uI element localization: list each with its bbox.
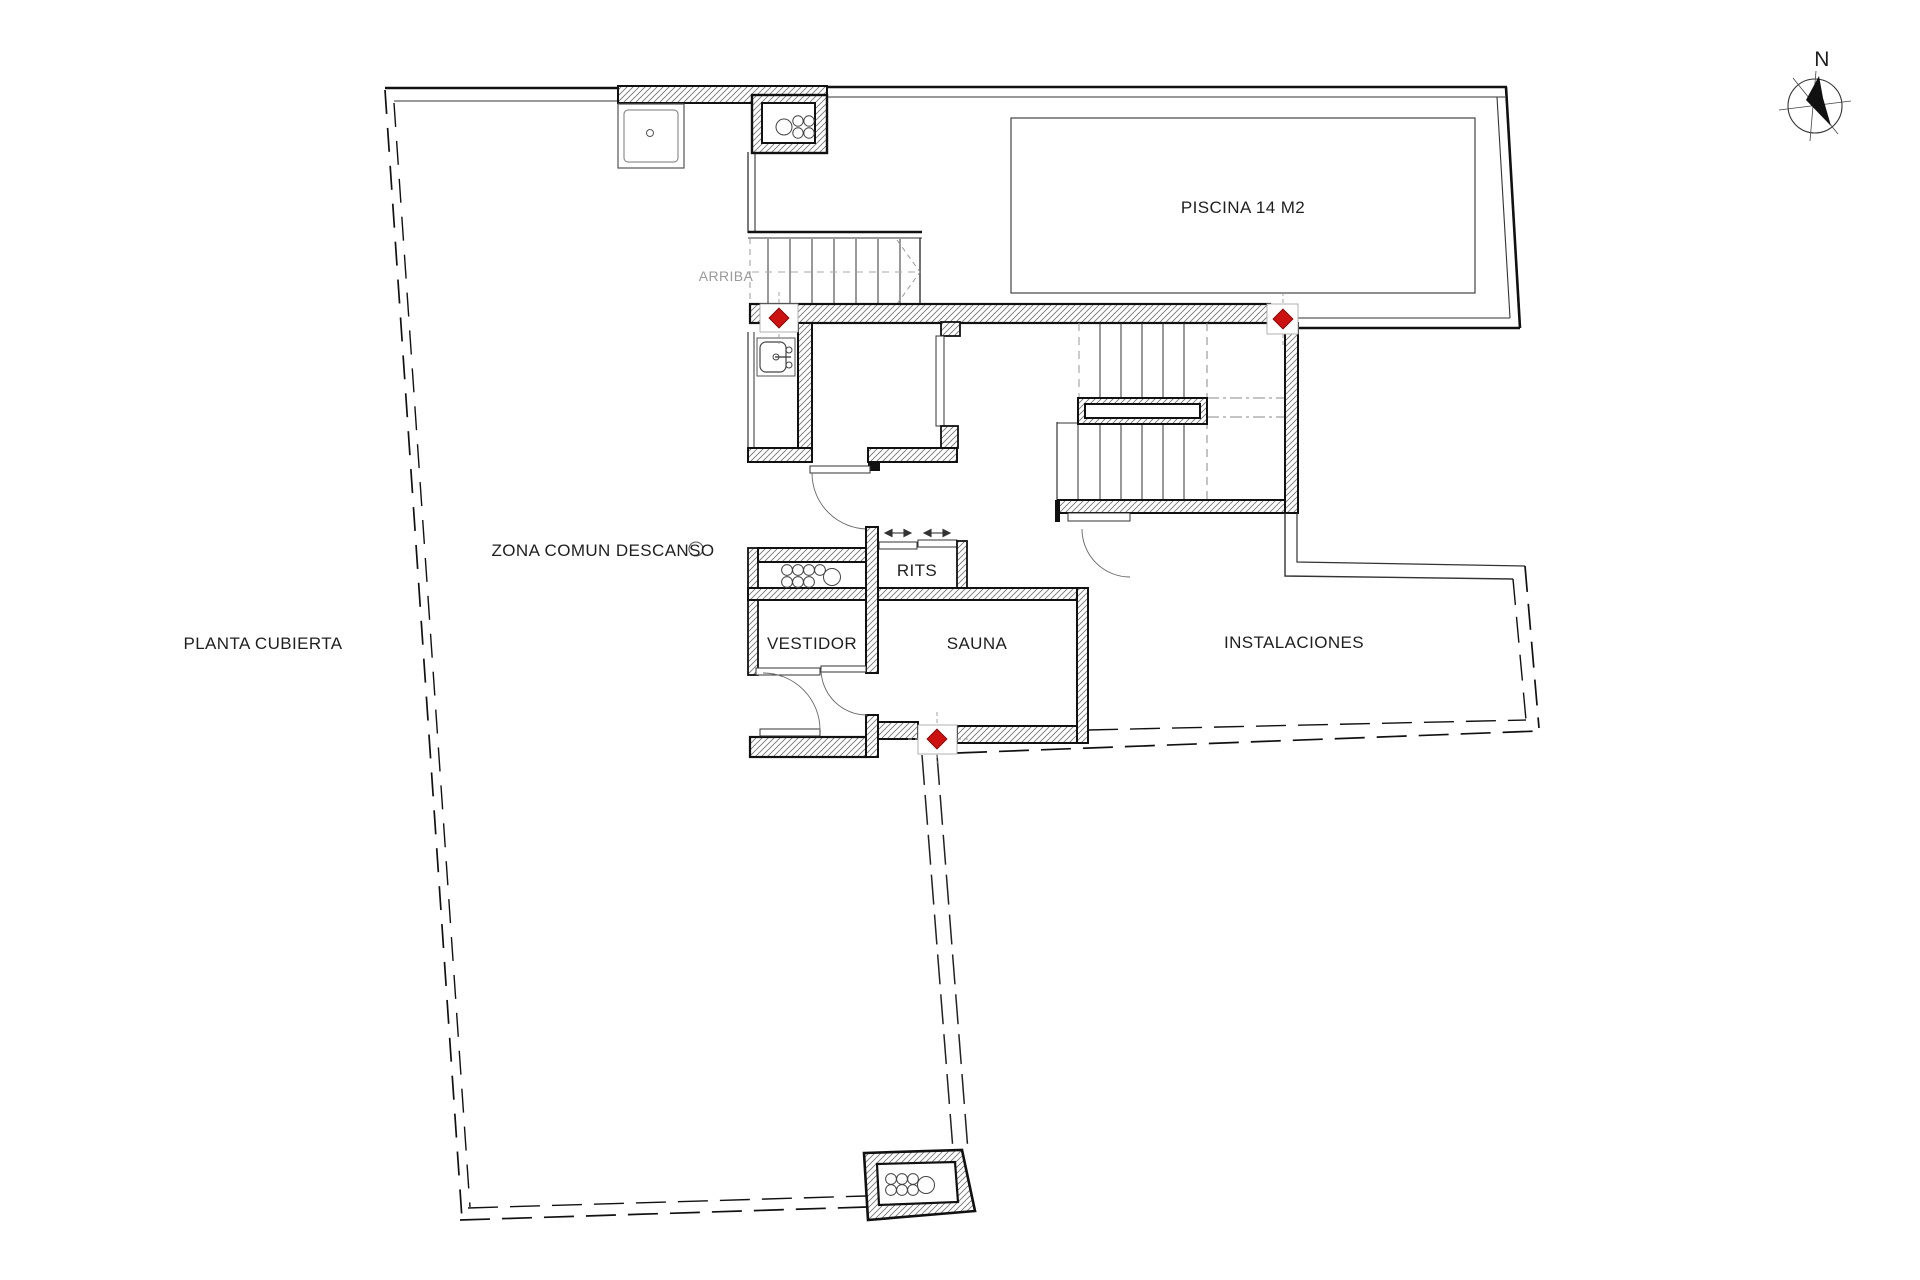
compass-north-label: N — [1814, 48, 1830, 71]
room-label-vestidor: VESTIDOR — [767, 634, 857, 653]
vestidor-door — [821, 666, 867, 715]
rits-panel — [918, 540, 957, 547]
elevator-door — [936, 336, 944, 426]
shower-tray-icon — [618, 104, 684, 168]
elevator-room — [798, 323, 958, 448]
pool-terrace — [618, 86, 1520, 328]
room-label-piscina: PISCINA 14 M2 — [1181, 198, 1305, 217]
room-label-zona-comun: ZONA COMUN DESCANSO — [492, 541, 715, 560]
room-label-instalaciones: INSTALACIONES — [1224, 633, 1364, 652]
pipe-shaft-icon — [782, 565, 841, 588]
sink-corridor — [748, 332, 795, 448]
room-label-sauna: SAUNA — [947, 634, 1008, 653]
zona-comun-boundary — [385, 88, 867, 1220]
rits-shaft — [748, 530, 957, 676]
hall-door — [810, 466, 870, 529]
rits-panel — [879, 542, 917, 549]
low-partition — [756, 668, 820, 675]
walkway — [922, 755, 968, 1151]
terrace-south-wall — [750, 304, 1270, 336]
instalaciones-door — [1068, 513, 1130, 577]
room-label-rits: RITS — [897, 561, 937, 580]
walkway-door — [760, 673, 820, 736]
stair-direction-label: ARRIBA — [699, 268, 754, 284]
plan-title: PLANTA CUBIERTA — [183, 634, 342, 653]
duct-shaft-bottom — [864, 1150, 975, 1220]
arriba-staircase — [748, 232, 922, 305]
north-compass-icon: N — [1779, 48, 1851, 141]
sprinkler-markers — [760, 292, 1298, 764]
sink-icon — [757, 338, 795, 376]
floor-plan-svg: N PLANTA CUBIERTA ZONA COMUN DESCANSO PI… — [0, 0, 1920, 1280]
double-arrow-icon — [885, 530, 950, 537]
sprinkler-marker-icon — [760, 292, 798, 344]
main-staircase — [1055, 323, 1298, 577]
hall-walls — [748, 448, 957, 529]
duct-shaft-top — [752, 95, 827, 153]
floor-plan-page: N PLANTA CUBIERTA ZONA COMUN DESCANSO PI… — [0, 0, 1920, 1280]
